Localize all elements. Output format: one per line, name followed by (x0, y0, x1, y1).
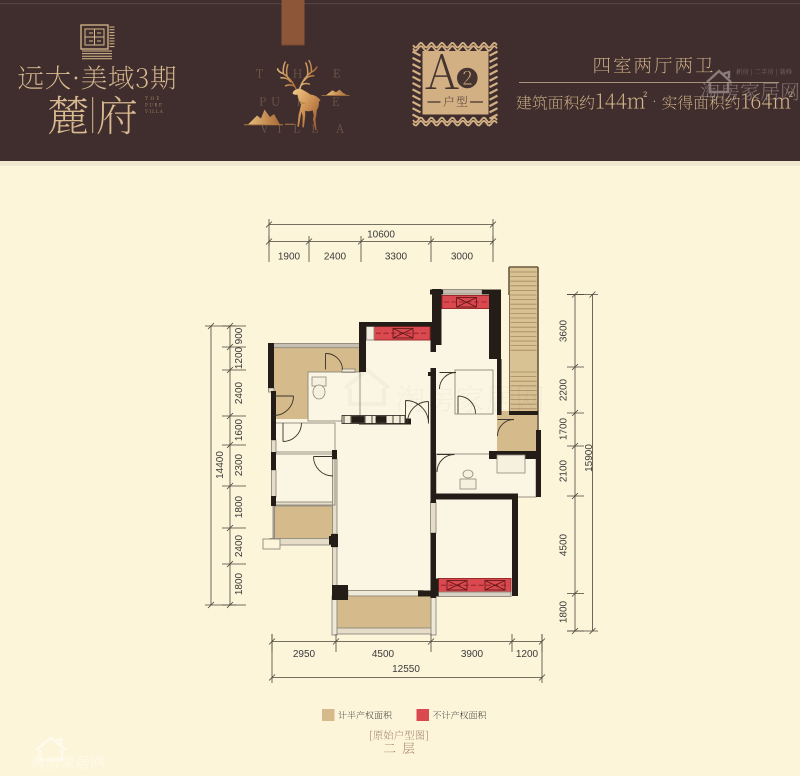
svg-text:3300: 3300 (385, 252, 408, 263)
svg-text:2400: 2400 (324, 252, 347, 263)
svg-text:2400: 2400 (234, 381, 245, 404)
svg-text:1200: 1200 (234, 346, 245, 369)
svg-text:1800: 1800 (234, 572, 245, 595)
svg-text:12550: 12550 (392, 664, 420, 675)
svg-text:15900: 15900 (584, 444, 595, 472)
svg-text:3000: 3000 (451, 252, 474, 263)
svg-text:1700: 1700 (559, 417, 570, 440)
svg-text:1900: 1900 (278, 252, 301, 263)
svg-text:3600: 3600 (559, 319, 570, 342)
svg-text:2950: 2950 (293, 649, 316, 660)
svg-text:2200: 2200 (559, 378, 570, 401)
svg-text:4500: 4500 (372, 649, 395, 660)
svg-text:1800: 1800 (234, 495, 245, 518)
svg-text:14400: 14400 (215, 451, 226, 479)
svg-text:3900: 3900 (461, 649, 484, 660)
svg-text:1200: 1200 (516, 649, 539, 660)
svg-text:10600: 10600 (367, 230, 395, 241)
svg-text:1800: 1800 (559, 600, 570, 623)
svg-text:2100: 2100 (559, 459, 570, 482)
svg-text:2400: 2400 (234, 534, 245, 557)
svg-text:4500: 4500 (559, 533, 570, 556)
svg-text:1600: 1600 (234, 418, 245, 441)
svg-text:2300: 2300 (234, 453, 245, 476)
svg-text:900: 900 (234, 327, 245, 344)
